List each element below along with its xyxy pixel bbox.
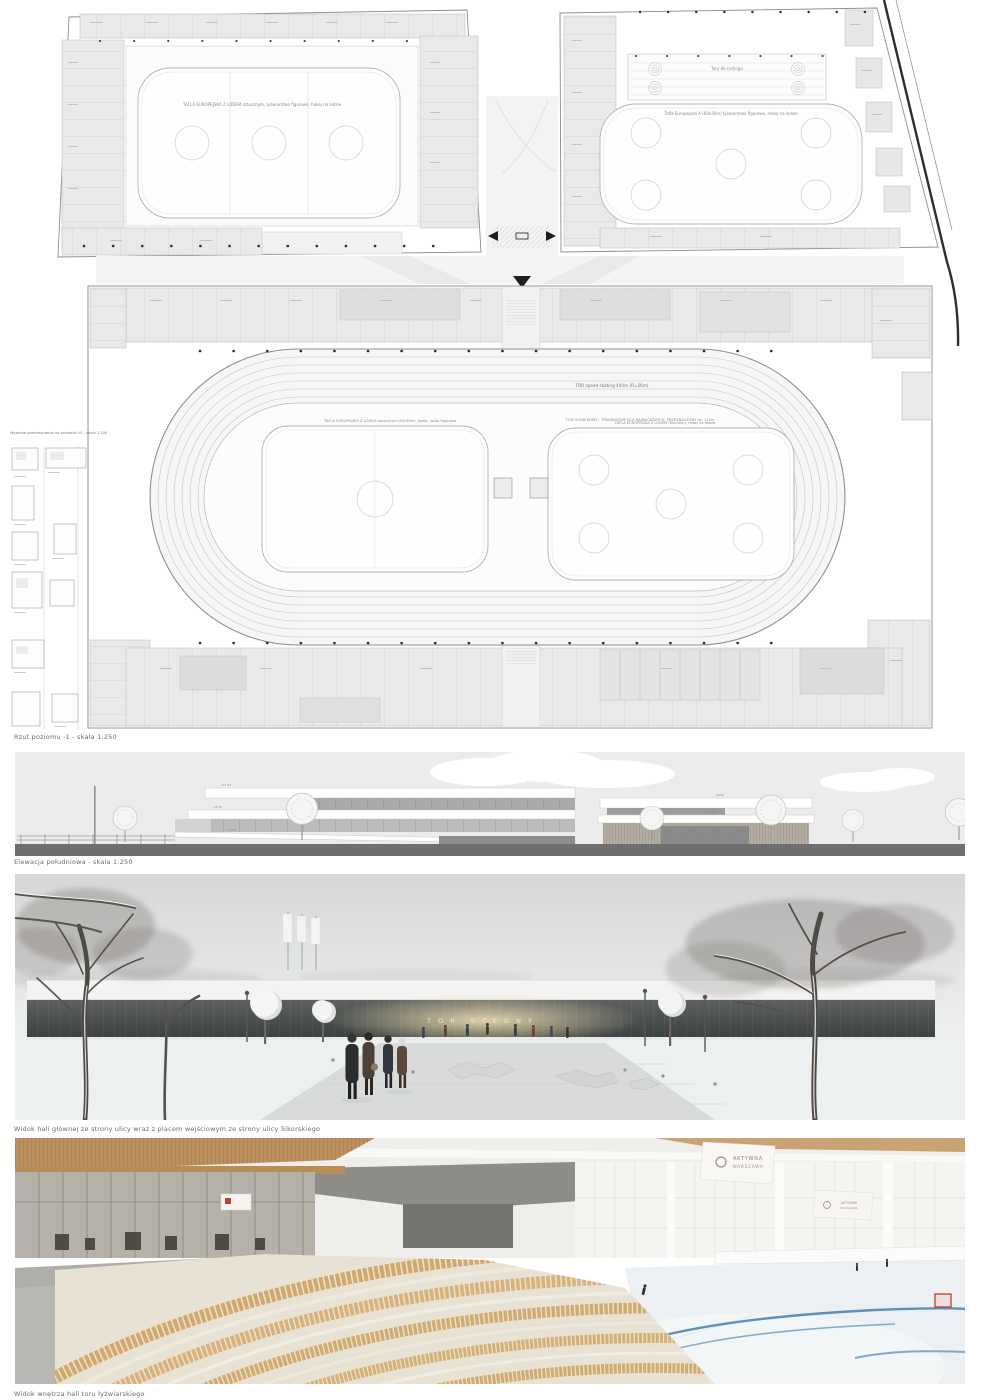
floor-plan-upper-left: TAFLA EUROPEJSKA Z LODEM sztucznym, łyżw… <box>58 10 481 257</box>
svg-text:+5,50: +5,50 <box>213 805 222 809</box>
sidebar-caption: Wybrane pomieszczenia na poziomie U1 - s… <box>10 431 108 435</box>
curling-label: Tory do curlingu <box>710 66 743 71</box>
hockey-goal <box>935 1294 951 1307</box>
floor-plan-upper-right: Tory do curlingu Tafla Europejska A (60x… <box>560 8 938 252</box>
ice-rink-2 <box>600 104 862 224</box>
floor-plan-main: TOR speed skating 400m (R=26m) TOR DODAT… <box>88 286 932 728</box>
rink-2-label: Tafla Europejska A (60x30m) łyżwiarstwo … <box>663 111 798 116</box>
svg-text:+11,43: +11,43 <box>220 783 231 787</box>
ground-line <box>15 844 965 856</box>
caption-plan: Rzut poziomu -1 - skala 1:250 <box>14 733 117 741</box>
speed-track-label: TOR speed skating 400m (R=26m) <box>574 383 648 388</box>
svg-text:+1,40: +1,40 <box>227 828 236 832</box>
glass-wall-gym <box>15 1166 345 1258</box>
infield-left-label: TAFLA EUROPEJSKA Z LODEM sztucznym (60x3… <box>323 419 456 423</box>
caption-winter: Widok hali głównej ze strony ulicy wraz … <box>14 1125 320 1133</box>
caption-elevation: Elewacja południowa - skala 1:250 <box>14 858 133 866</box>
infield-right-label: TAFLA EUROPEJSKA Z LODEM (60x30m), hokej… <box>614 421 716 425</box>
logo-icon <box>225 1198 231 1204</box>
banner-text-line2: WARSZAWA <box>732 1164 763 1169</box>
floor-plans-drawing: TAFLA EUROPEJSKA Z LODEM sztucznym, łyżw… <box>0 0 1000 745</box>
svg-text:+4,50: +4,50 <box>707 811 716 815</box>
flagpole <box>94 786 96 844</box>
ice-rink-1 <box>138 68 400 218</box>
winter-exterior-render: TOR STEGNY <box>15 874 965 1120</box>
presentation-board: TAFLA EUROPEJSKA Z LODEM sztucznym, łyżw… <box>0 0 1000 1400</box>
south-elevation: +11,43 +5,50 +1,40 +8,50 +4,50 <box>15 752 965 856</box>
svg-text:+8,50: +8,50 <box>715 793 724 797</box>
infield-rink-left <box>262 426 488 572</box>
caption-interior: Widok wnętrza hali toru łyżwiarskiego <box>14 1390 145 1398</box>
interior-render: AKTYWNA WARSZAWA AKTYWNA WARSZAWA <box>15 1138 965 1384</box>
banner2-text-line1: AKTYWNA <box>841 1201 858 1205</box>
banner-text-line1: AKTYWNA <box>733 1156 763 1162</box>
rink-1-label: TAFLA EUROPEJSKA Z LODEM sztucznym, łyżw… <box>182 102 342 107</box>
main-hall-building: TOR STEGNY <box>27 980 935 1047</box>
building-sign: TOR STEGNY <box>426 1017 539 1025</box>
curling-hall: Tory do curlingu <box>628 54 826 100</box>
infield-rink-right <box>548 428 794 580</box>
banner2-text-line2: WARSZAWA <box>840 1206 859 1210</box>
